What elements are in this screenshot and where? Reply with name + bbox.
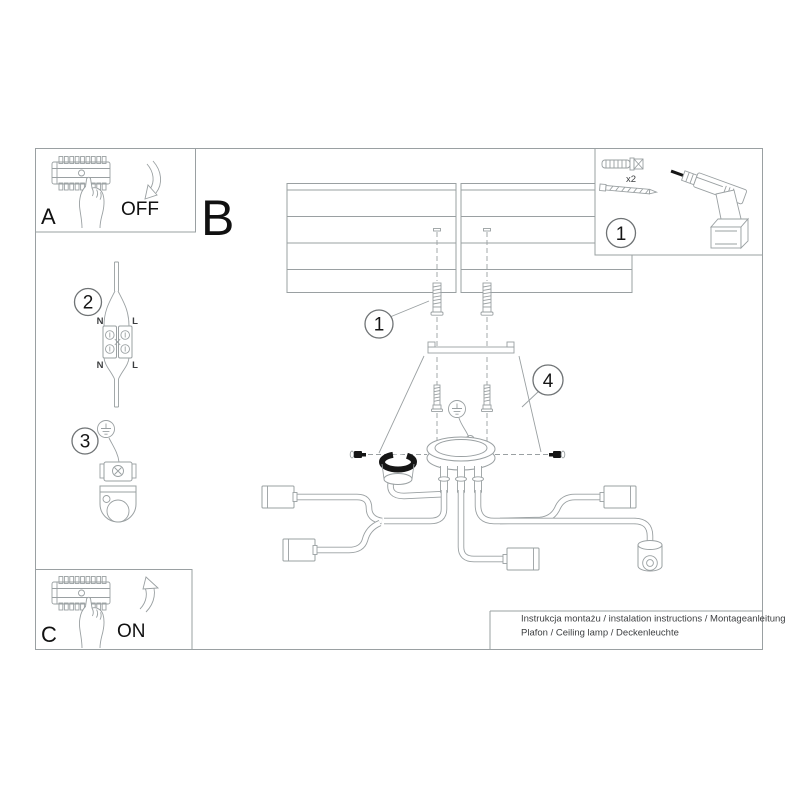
wiring-diagram: 2 N L N L (75, 262, 139, 407)
breaker-panel-off-icon (52, 157, 110, 191)
socket-detail (382, 455, 414, 485)
lamp-arms (294, 490, 650, 559)
instruction-diagram: x2 1 1 (0, 0, 800, 800)
socket-lower-left (283, 539, 317, 561)
footer-line-1: Instrukcja montażu / instalation instruc… (521, 614, 786, 625)
callout-4: 4 (522, 365, 563, 407)
canopy-stubs (439, 466, 484, 494)
lamp-holder-icon (100, 462, 136, 522)
wire-l-bottom: L (132, 360, 138, 371)
anchor-screws (431, 229, 493, 349)
ceiling-panels (287, 184, 632, 293)
wire-n-bottom: N (97, 360, 104, 371)
callout-2: 2 (75, 289, 102, 316)
step-a-box: A OFF (36, 149, 196, 233)
arrow-down-icon (145, 161, 161, 199)
instruction-sheet: x2 1 1 (0, 0, 800, 800)
step-b-label: B (201, 190, 234, 246)
svg-text:1: 1 (374, 315, 385, 336)
step-c-box: C ON (36, 570, 193, 650)
svg-text:3: 3 (80, 432, 91, 453)
wire-l-top: L (132, 316, 138, 327)
arrow-up-icon (140, 577, 158, 612)
socket-lower-middle (503, 548, 539, 570)
socket-upper-right (600, 486, 636, 508)
footer-line-2: Plafon / Ceiling lamp / Deckenleuchte (521, 628, 679, 639)
off-label: OFF (121, 199, 159, 220)
svg-text:4: 4 (543, 371, 554, 392)
wire-n-top: N (97, 316, 104, 327)
step-a-label: A (41, 204, 56, 229)
callout-3: 3 (72, 428, 98, 454)
on-label: ON (117, 621, 146, 642)
mounting-bracket (428, 342, 514, 353)
grounding-step: 3 (72, 421, 136, 523)
parts-box: x2 1 (595, 149, 763, 256)
callout-1-parts: 1 (607, 219, 636, 248)
breaker-panel-on-icon (52, 577, 110, 611)
terminal-block (103, 326, 132, 358)
anchor-qty-label: x2 (626, 174, 636, 185)
ground-symbol-icon (98, 421, 115, 438)
socket-upper-left (262, 486, 297, 508)
svg-text:2: 2 (83, 293, 94, 314)
side-bolt-right (495, 451, 565, 458)
footer-title-block: Instrukcja montażu / instalation instruc… (490, 611, 786, 650)
step-c-label: C (41, 622, 57, 647)
canopy (427, 435, 495, 470)
wall-plug-icon (602, 158, 643, 170)
socket-lower-right-down (638, 541, 662, 572)
callout-1-screws: 1 (365, 301, 429, 338)
svg-text:1: 1 (616, 224, 627, 245)
ground-symbol-canopy (449, 401, 470, 439)
